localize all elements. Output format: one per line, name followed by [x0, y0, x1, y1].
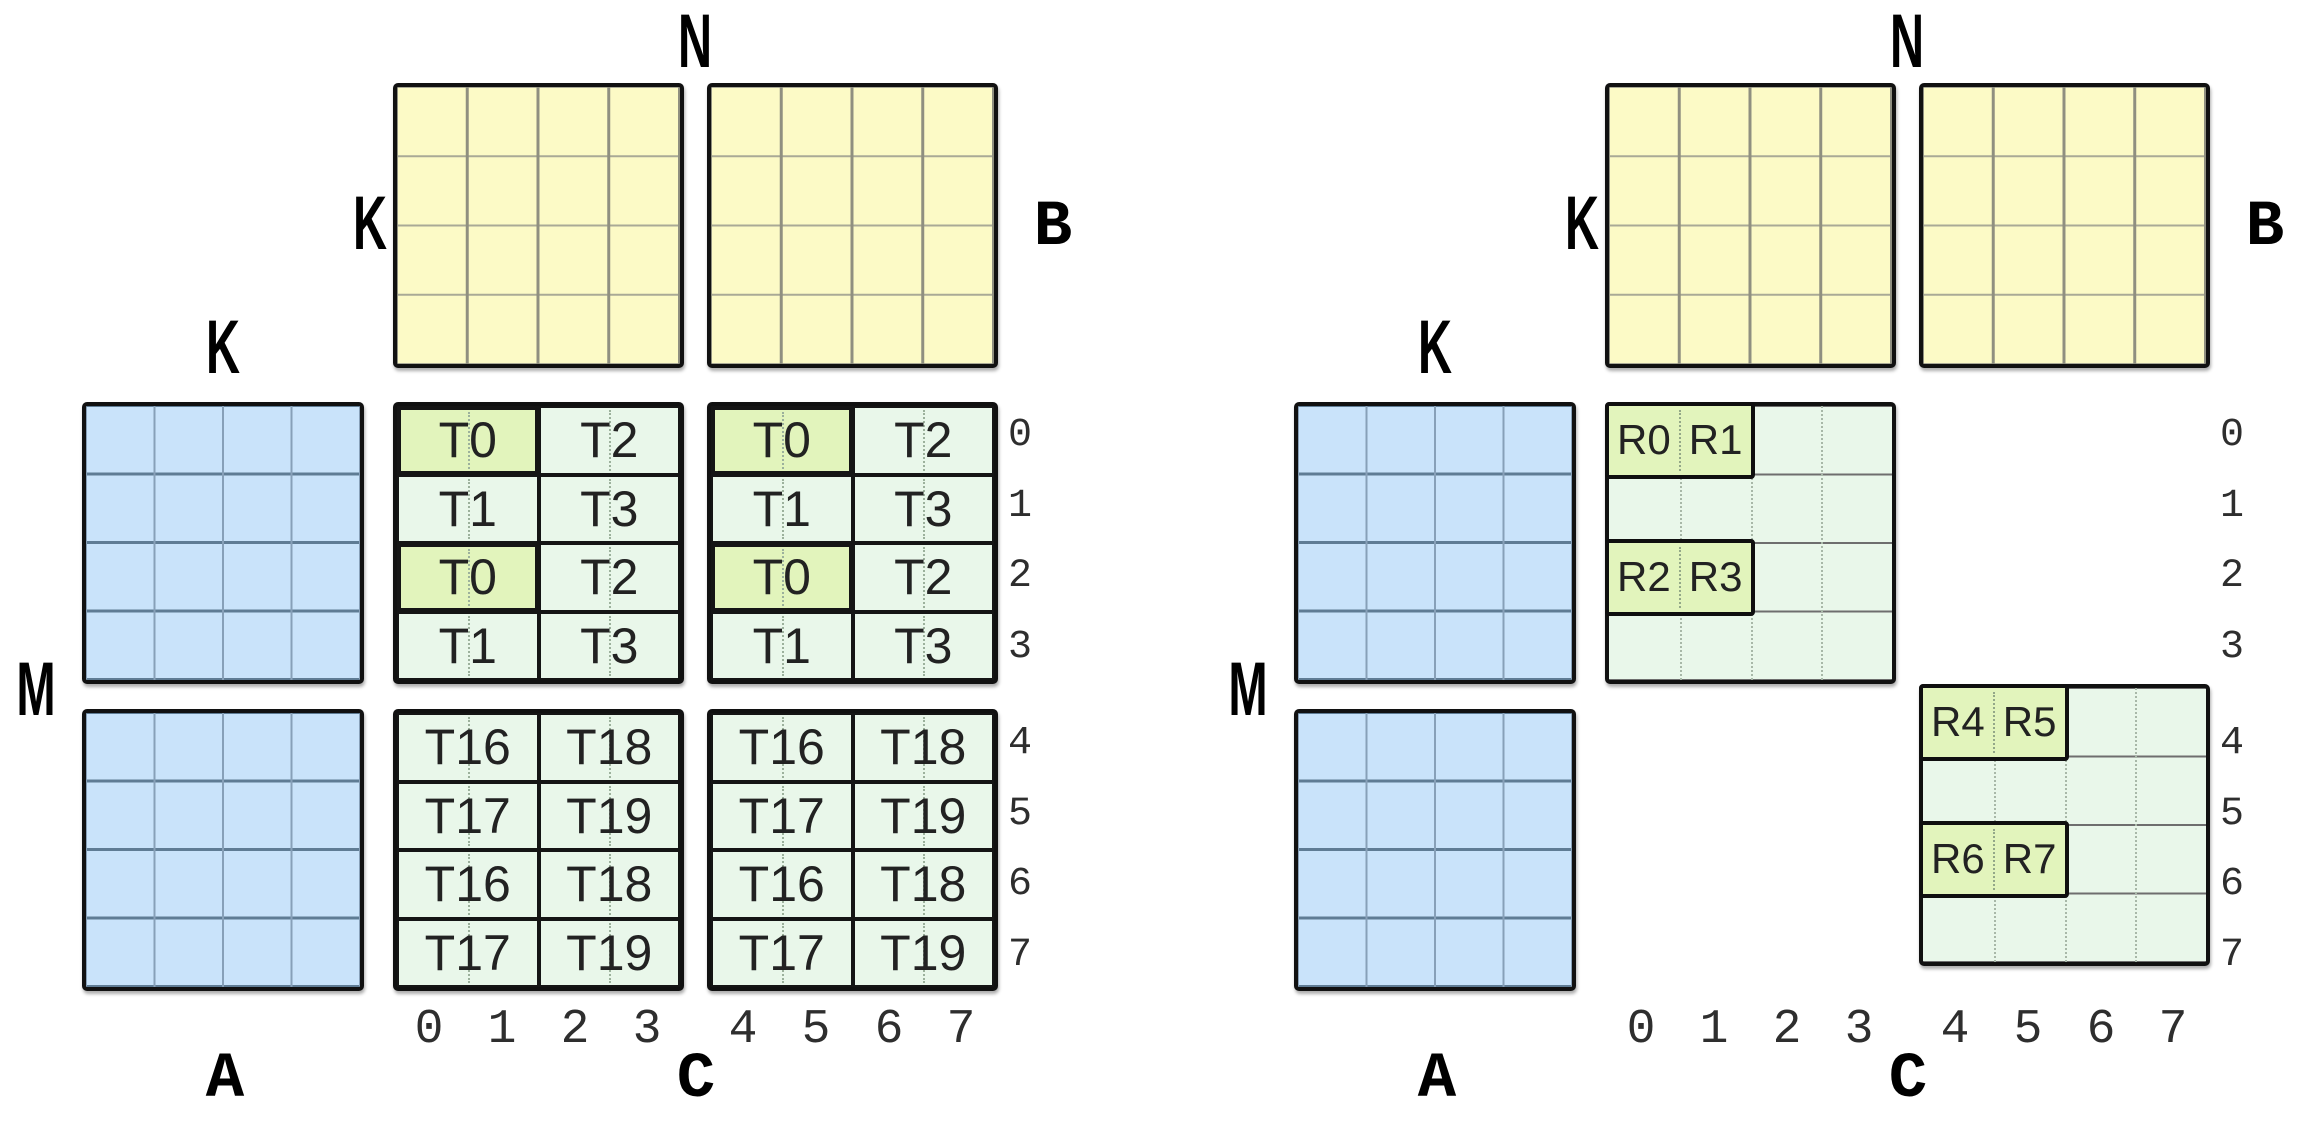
thread-tile: T16 [711, 850, 853, 919]
dim-label-m: M [1223, 652, 1273, 728]
row-index-label: 0 [2202, 416, 2262, 456]
row-index-label: 3 [2202, 628, 2262, 668]
register-tile-box: R6R7 [1919, 821, 2069, 898]
col-index-label: 1 [472, 1006, 532, 1054]
row-index-label: 3 [990, 628, 1050, 668]
dim-label-k-cols-of-a: K [1410, 310, 1460, 386]
thread-tile: T2 [853, 543, 995, 612]
matrix-a-label: A [164, 1048, 284, 1112]
register-tile-box: R2R3 [1605, 539, 1755, 616]
col-index-label: 5 [786, 1006, 846, 1054]
register-tile-box: R4R5 [1919, 684, 2069, 761]
matrix-c-block-top-right: T0 T2 T1 T3 T0 T2 T1 T3 [707, 402, 998, 684]
dim-label-n: N [1882, 4, 1932, 80]
matrix-b-block-0 [393, 83, 684, 368]
thread-tile: T18 [539, 850, 681, 919]
register-tile: R3 [1681, 543, 1751, 612]
thread-tile: T3 [853, 612, 995, 681]
register-tile: R2 [1609, 543, 1679, 612]
row-index-label: 0 [990, 416, 1050, 456]
col-index-label: 0 [399, 1006, 459, 1054]
dim-label-m: M [11, 652, 61, 728]
row-index-label: 2 [2202, 557, 2262, 597]
thread-tile: T1 [397, 612, 539, 681]
thread-tile: T17 [711, 919, 853, 988]
thread-tile: T16 [397, 850, 539, 919]
thread-tile: T19 [853, 919, 995, 988]
column-divider-dotted [1821, 406, 1823, 680]
matrix-a-block-0 [82, 402, 364, 684]
diagram-register-tiles: N K K M B A C R0R1 R2R3 R4R5 [1232, 0, 2292, 1126]
matrix-c-block-top-right: R4R5 R6R7 [1919, 684, 2210, 966]
thread-tile: T16 [397, 713, 539, 782]
thread-tile: T1 [711, 612, 853, 681]
col-index-label: 2 [1757, 1006, 1817, 1054]
row-index-label: 6 [2202, 865, 2262, 905]
col-index-label: 4 [713, 1006, 773, 1054]
row-index-label: 7 [990, 936, 1050, 976]
register-tile: R6 [1923, 825, 1993, 894]
dim-label-n: N [670, 4, 720, 80]
matrix-b-block-1 [707, 83, 998, 368]
row-index-label: 4 [2202, 724, 2262, 764]
register-tile: R4 [1923, 688, 1993, 757]
thread-tile: T18 [539, 713, 681, 782]
matrix-a-block-1 [82, 709, 364, 991]
thread-tile: T3 [539, 475, 681, 544]
thread-tile: T3 [539, 612, 681, 681]
col-index-label: 7 [2143, 1006, 2203, 1054]
col-index-label: 7 [931, 1006, 991, 1054]
thread-tile: T19 [853, 782, 995, 851]
register-tile: R0 [1609, 406, 1679, 475]
col-index-label: 3 [617, 1006, 677, 1054]
row-index-label: 6 [990, 865, 1050, 905]
thread-tile: T17 [711, 782, 853, 851]
thread-tile: T19 [539, 782, 681, 851]
row-index-label: 5 [990, 795, 1050, 835]
row-index-label: 2 [990, 557, 1050, 597]
thread-tile: T3 [853, 475, 995, 544]
matrix-a-block-0 [1294, 402, 1576, 684]
matrix-b-block-1 [1919, 83, 2210, 368]
thread-tile: T1 [711, 475, 853, 544]
dim-label-k-cols-of-a: K [198, 310, 248, 386]
column-divider-dotted [2135, 688, 2137, 962]
thread-tile: T18 [853, 713, 995, 782]
thread-tile: T17 [397, 919, 539, 988]
row-index-label: 1 [2202, 487, 2262, 527]
thread-tile: T2 [539, 543, 681, 612]
dim-label-k-rows-of-b: K [345, 186, 395, 262]
thread-tile-highlighted: T0 [711, 543, 853, 612]
thread-tile: T17 [397, 782, 539, 851]
row-index-label: 7 [2202, 936, 2262, 976]
matrix-b-label: B [992, 196, 1112, 260]
col-index-label: 2 [545, 1006, 605, 1054]
thread-tile: T2 [853, 406, 995, 475]
register-tile: R7 [1995, 825, 2065, 894]
thread-tile-highlighted: T0 [397, 543, 539, 612]
matrix-c-block-top-left: R0R1 R2R3 [1605, 402, 1896, 684]
col-index-label: 4 [1925, 1006, 1985, 1054]
matrix-c-block-top-left: T0 T2 T1 T3 T0 T2 T1 T3 [393, 402, 684, 684]
thread-tile: T19 [539, 919, 681, 988]
diagram-thread-tiles: N K K M B A C T0 T2 T1 T3 T0 T2 T1 T3 T0… [20, 0, 1080, 1126]
thread-tile: T2 [539, 406, 681, 475]
matrix-c-block-bottom-left: T16 T18 T17 T19 T16 T18 T17 T19 [393, 709, 684, 991]
matrix-a-label: A [1376, 1048, 1496, 1112]
matrix-a-block-1 [1294, 709, 1576, 991]
row-index-label: 5 [2202, 795, 2262, 835]
matrix-c-label: C [635, 1048, 755, 1112]
matrix-b-block-0 [1605, 83, 1896, 368]
thread-tile: T18 [853, 850, 995, 919]
col-index-label: 6 [2071, 1006, 2131, 1054]
col-index-label: 5 [1998, 1006, 2058, 1054]
row-index-label: 1 [990, 487, 1050, 527]
thread-tile-highlighted: T0 [397, 406, 539, 475]
thread-tile: T16 [711, 713, 853, 782]
matrix-c-label: C [1847, 1048, 1967, 1112]
thread-tile: T1 [397, 475, 539, 544]
matrix-c-block-bottom-right: T16 T18 T17 T19 T16 T18 T17 T19 [707, 709, 998, 991]
dim-label-k-rows-of-b: K [1557, 186, 1607, 262]
register-tile: R1 [1681, 406, 1751, 475]
col-index-label: 6 [859, 1006, 919, 1054]
col-index-label: 3 [1829, 1006, 1889, 1054]
col-index-label: 0 [1611, 1006, 1671, 1054]
matrix-b-label: B [2204, 196, 2300, 260]
tiling-figure: N K K M B A C T0 T2 T1 T3 T0 T2 T1 T3 T0… [0, 0, 2300, 1126]
register-tile: R5 [1995, 688, 2065, 757]
row-index-label: 4 [990, 724, 1050, 764]
col-index-label: 1 [1684, 1006, 1744, 1054]
register-tile-box: R0R1 [1605, 402, 1755, 479]
thread-tile-highlighted: T0 [711, 406, 853, 475]
